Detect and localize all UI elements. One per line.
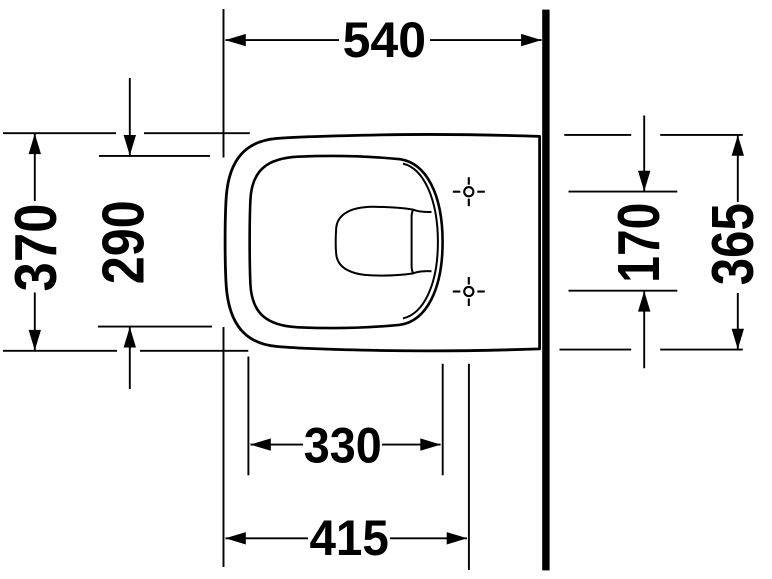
svg-text:365: 365 xyxy=(700,203,766,285)
svg-text:370: 370 xyxy=(3,204,69,292)
svg-text:290: 290 xyxy=(91,200,157,284)
svg-text:170: 170 xyxy=(606,203,672,283)
svg-text:415: 415 xyxy=(309,510,389,566)
svg-text:540: 540 xyxy=(343,12,426,68)
svg-text:330: 330 xyxy=(304,417,382,473)
